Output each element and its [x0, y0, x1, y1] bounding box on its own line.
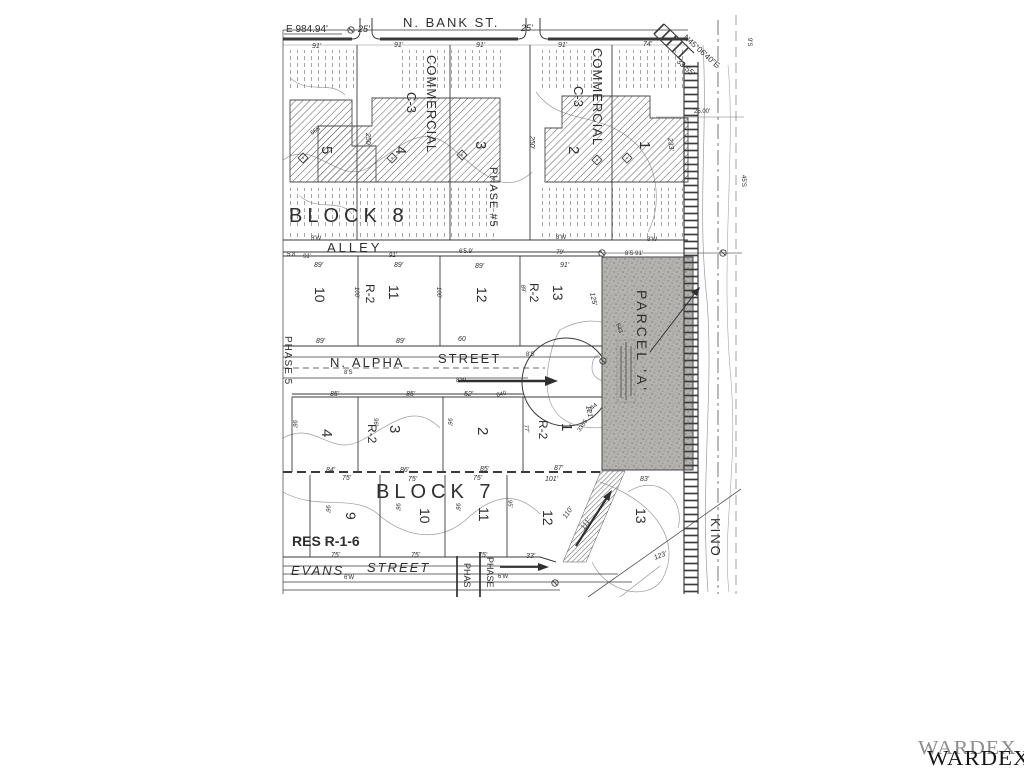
label-dim-96-b: 96' — [372, 418, 378, 427]
label-dim-96-e: 96' — [394, 503, 400, 512]
label-dim-87: 87' — [554, 465, 564, 472]
label-dim-96-a: 96' — [291, 420, 297, 429]
label-r2-d: R-2 — [536, 420, 550, 440]
label-lot7-9: 9 — [343, 512, 359, 520]
label-dim-25-a: 25' — [357, 24, 370, 34]
wardex-watermark-front: WARDEX — [927, 746, 1024, 768]
label-dim-8w-d: 8'W — [456, 378, 466, 384]
label-dim-101: 101' — [545, 476, 559, 483]
label-block7-title: BLOCK 7 — [376, 481, 495, 503]
label-lot8-2: 2 — [565, 146, 582, 154]
label-dim-96-f: 96' — [454, 503, 460, 512]
label-lot7-10: 10 — [417, 508, 433, 524]
label-evans-street: STREET — [367, 560, 430, 575]
label-lot-11: 11 — [386, 285, 402, 300]
label-dim-125: 125' — [588, 292, 598, 307]
label-lot7-1: 1 — [558, 423, 575, 431]
label-dim-75-e: 75' — [411, 552, 421, 559]
label-n-bank-st: N. BANK ST. — [403, 15, 499, 30]
label-dim-100-b: 100' — [435, 287, 441, 299]
label-dim-91-g: 91' — [560, 262, 570, 269]
label-dim-89-a: 89' — [314, 262, 324, 269]
label-dim-250-a: 250' — [364, 132, 371, 147]
label-lot8-1: 1 — [636, 141, 653, 149]
label-lot7-2: 2 — [474, 427, 491, 435]
label-lot7-11: 11 — [476, 507, 492, 522]
label-r2-a: R-2 — [363, 284, 377, 304]
label-e-coordinate: E 984.94' — [286, 24, 328, 35]
label-dim-91-f: 91' — [389, 253, 398, 259]
label-dim-91-c: 91' — [476, 42, 486, 49]
label-contour-644: 644 — [587, 402, 599, 413]
plat-map-scan: E 984.94'25'N. BANK ST.25'N45°06'40"E33.… — [0, 0, 1024, 768]
label-lot7-3: 3 — [386, 425, 403, 433]
label-dim-6w-a: 6'W — [344, 575, 354, 581]
label-block8-title: BLOCK 8 — [289, 205, 408, 227]
label-dim-52: 52' — [464, 391, 474, 398]
label-dim-45s: 45'S — [740, 175, 746, 187]
label-lot7-13: 13 — [633, 508, 649, 524]
label-dim-79: 79' — [556, 250, 565, 256]
label-dim-85-c: 85' — [480, 466, 490, 473]
label-dim-9s: 9'S — [746, 38, 752, 46]
label-alley: ALLEY — [327, 240, 382, 255]
label-dim-60: 60 — [458, 336, 466, 343]
label-evans: EVANS — [291, 563, 344, 578]
label-dim-8w-b: 8'W — [556, 235, 566, 241]
label-dim-110: 110' — [562, 505, 575, 520]
monument-icon — [552, 580, 558, 586]
label-dim-74: 74' — [643, 41, 653, 48]
label-dim-75-a: 75' — [342, 475, 352, 482]
label-dim-91-a: 91' — [312, 43, 322, 50]
label-dim-89-b: 89' — [394, 262, 404, 269]
label-lot-12: 12 — [474, 287, 490, 303]
label-n-alpha-street: STREET — [438, 351, 501, 366]
label-lot7-4: 4 — [318, 429, 335, 437]
label-dim-91-d: 91' — [558, 42, 568, 49]
label-phase-5-hash: PHASE #5 — [487, 167, 499, 228]
label-dim-89-c: 89' — [475, 263, 485, 270]
label-dim-89-f: 89' — [396, 338, 406, 345]
label-dim-91-b: 91' — [394, 42, 404, 49]
label-dim-8w-c: 8'W — [647, 237, 657, 243]
label-commercial-b: COMMERCIAL — [590, 48, 605, 146]
label-res-r-1-6: RES R-1-6 — [292, 533, 360, 549]
label-contour-640: 640 — [496, 390, 508, 399]
label-dim-85-a: 85' — [330, 391, 340, 398]
label-dim-91-e: 91' — [303, 254, 312, 260]
label-parcel-a: PARCEL 'A' — [634, 290, 650, 393]
label-dim-250-b: 250' — [528, 135, 535, 150]
label-n-alpha: N. ALPHA — [330, 355, 405, 370]
label-phase-evans-b: PHASE — [485, 557, 495, 588]
label-phase-5-left: PHASE 5 — [282, 336, 293, 385]
label-dim-25-b: 25' — [520, 23, 533, 33]
label-lot-10: 10 — [312, 287, 328, 303]
label-lot8-5: 5 — [318, 146, 335, 154]
label-dim-123: 123' — [653, 550, 668, 562]
label-dim-75-d: 75' — [331, 552, 341, 559]
label-dim-96-d: 96' — [324, 505, 330, 514]
label-dim-2500: 25.00' — [694, 109, 710, 115]
label-lot7-12: 12 — [540, 510, 556, 526]
label-dim-96-c: 96' — [446, 418, 452, 427]
label-r2-c: R-2 — [365, 424, 379, 444]
label-dim-85-b: 85' — [406, 391, 416, 398]
label-dim-659: 6'5.9' — [459, 249, 473, 255]
label-dim-86: 86' — [400, 467, 410, 474]
label-dim-33: 33' — [526, 553, 536, 560]
label-dim-100-a: 100' — [353, 287, 359, 299]
plat-svg: E 984.94'25'N. BANK ST.25'N45°06'40"E33.… — [0, 0, 1024, 768]
label-c3-a: C-3 — [404, 92, 419, 113]
label-dim-8w-a: 8'W — [311, 236, 321, 242]
label-dim-8s91: 8'S 91' — [625, 251, 643, 257]
label-commercial-a: COMMERCIAL — [424, 55, 439, 153]
label-dim-84: 84' — [326, 467, 336, 474]
label-dim-58: 5.8 — [287, 252, 296, 258]
label-dim-89-e: 89' — [316, 338, 326, 345]
label-r2-b: R-2 — [527, 283, 541, 303]
label-kino: KINO — [708, 518, 723, 558]
label-c3-b: C-3 — [571, 86, 586, 107]
label-lot8-4: 4 — [392, 146, 409, 154]
label-phase-evans-a: PHAS — [462, 563, 472, 588]
label-dim-6w-b: 6'W — [498, 574, 508, 580]
label-dim-8s-b: 8'S — [526, 352, 534, 358]
label-dim-83: 83' — [640, 476, 650, 483]
label-lot-13: 13 — [550, 285, 566, 301]
label-lot8-3: 3 — [472, 141, 489, 149]
label-dim-95: 95' — [506, 500, 513, 509]
label-dim-8s-a: 8'S — [344, 370, 352, 376]
